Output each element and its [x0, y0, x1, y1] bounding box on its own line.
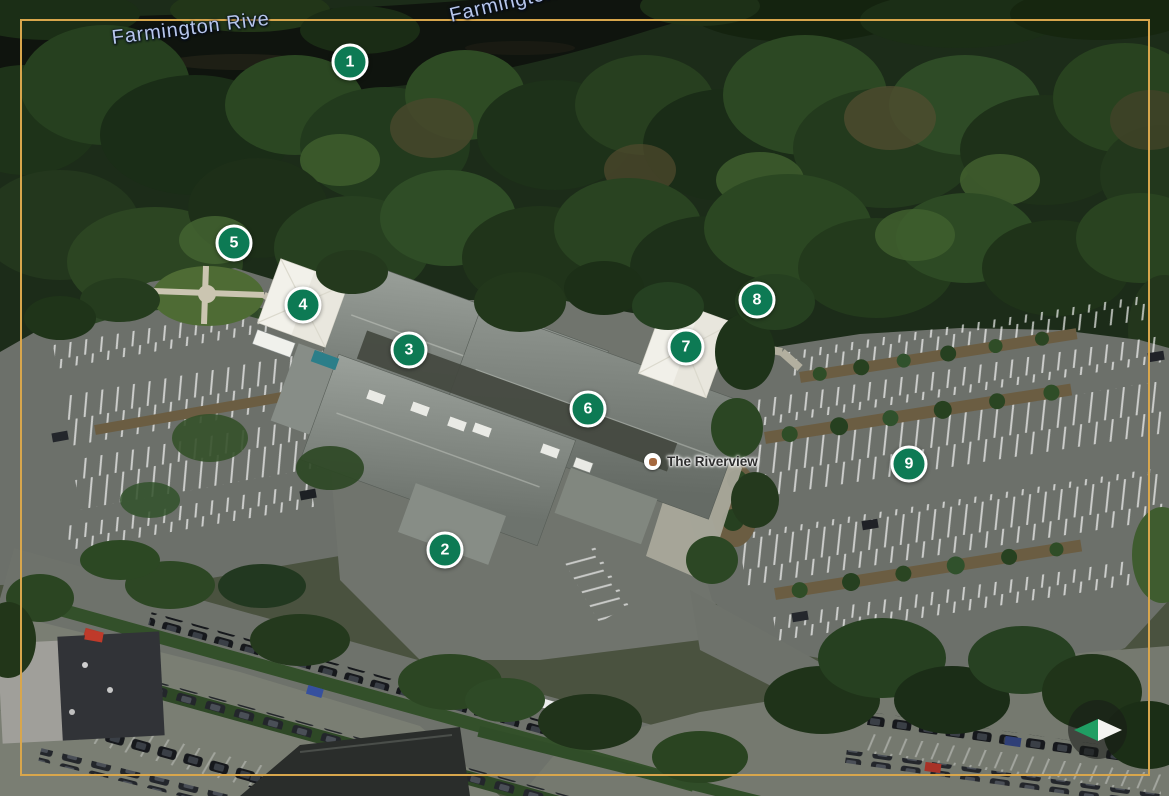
map-marker-8[interactable]: 8 [739, 282, 776, 319]
poi-dot-icon [644, 453, 661, 470]
map-marker-4[interactable]: 4 [285, 287, 322, 324]
poi-label: The Riverview [667, 454, 758, 469]
compass-needle-right [1098, 719, 1122, 741]
map-marker-5[interactable]: 5 [216, 225, 253, 262]
aerial-site-map: Farmington Rive Farmington The Riverview… [0, 0, 1169, 796]
compass-needle-left [1074, 719, 1098, 741]
map-marker-1[interactable]: 1 [332, 44, 369, 81]
map-marker-7[interactable]: 7 [668, 329, 705, 366]
map-marker-2[interactable]: 2 [427, 532, 464, 569]
map-marker-3[interactable]: 3 [391, 332, 428, 369]
map-marker-9[interactable]: 9 [891, 446, 928, 483]
compass-icon[interactable] [1068, 700, 1127, 759]
map-marker-6[interactable]: 6 [570, 391, 607, 428]
poi-riverview[interactable]: The Riverview [644, 453, 758, 470]
